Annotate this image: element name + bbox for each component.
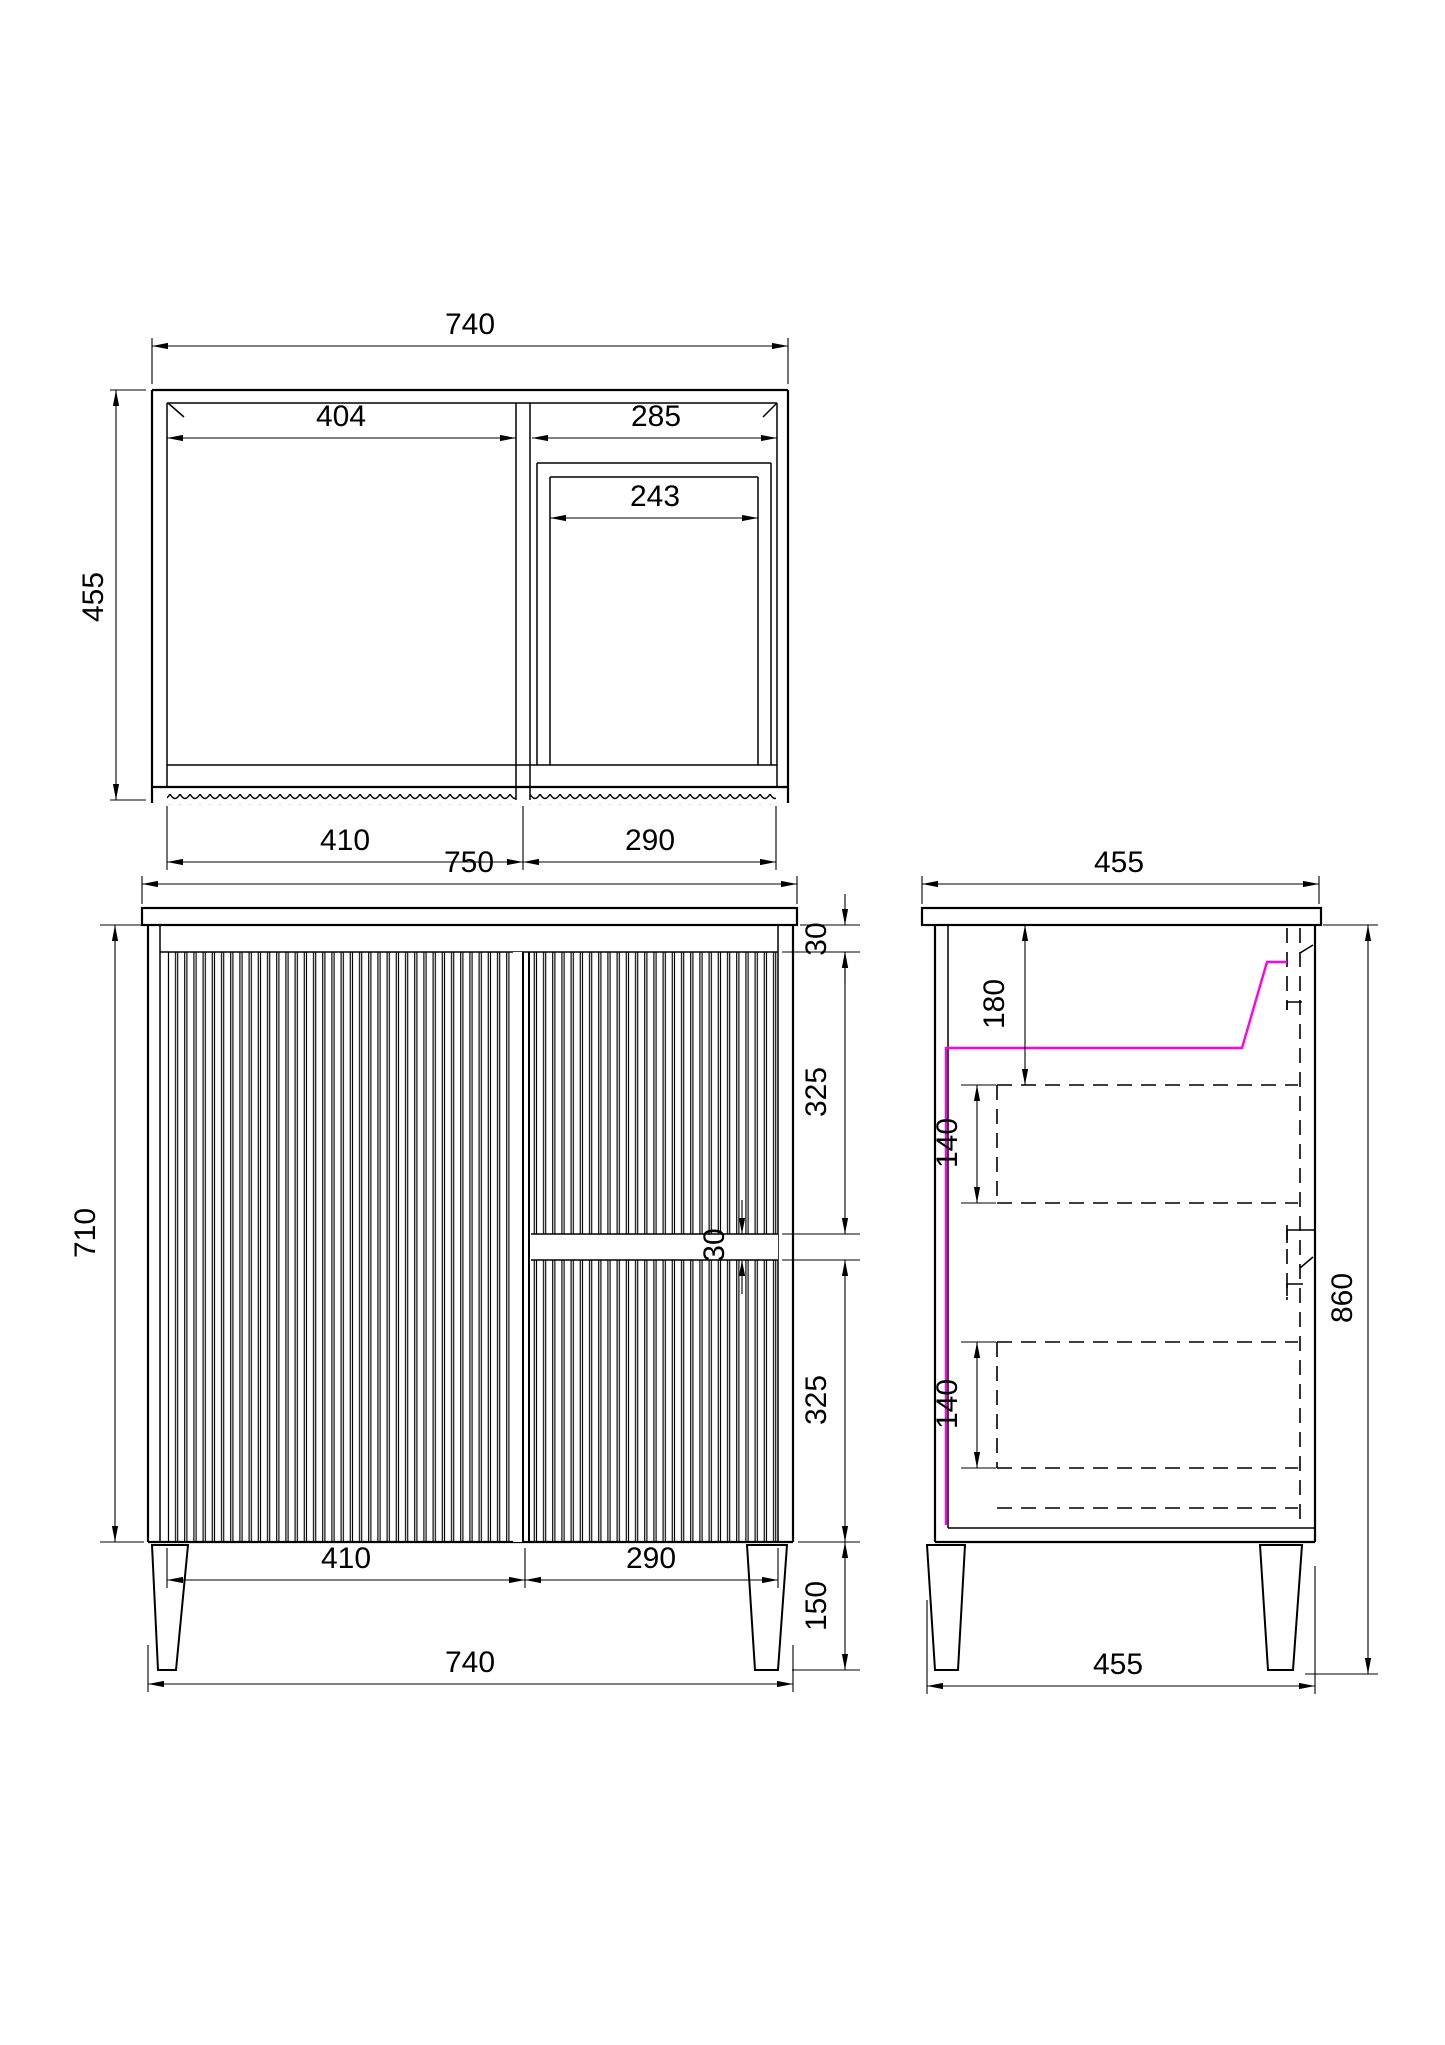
dim-label-front-leg-height: 150 (800, 1581, 833, 1631)
dim-label-front-body-width: 740 (445, 1646, 495, 1679)
dim-label-front-upper-drawer: 325 (800, 1067, 833, 1117)
dim-label-side-base-depth: 455 (1093, 1648, 1143, 1681)
dim-label-top-right-internal: 285 (631, 400, 681, 433)
benchtop-side (922, 908, 1321, 925)
dim-label-top-left-door: 410 (320, 824, 370, 857)
dim-label-side-overall-height: 860 (1326, 1273, 1359, 1323)
dim-label-top-right-door: 290 (625, 824, 675, 857)
dim-label-front-left-door: 410 (321, 1542, 371, 1575)
dim-label-front-groove: 30 (698, 1228, 731, 1261)
fluted-front-scallop-left (167, 794, 516, 805)
drawer-groove (531, 1234, 778, 1260)
benchtop-front (142, 908, 797, 925)
dim-label-front-right-door: 290 (626, 1542, 676, 1575)
dim-label-side-upper-drawer-front: 140 (931, 1118, 964, 1168)
dim-label-front-top-rail: 30 (800, 922, 833, 955)
dim-label-top-left-internal: 404 (316, 400, 366, 433)
dim-label-top-basin-width: 243 (630, 480, 680, 513)
technical-drawing: 740 455 404 285 243 410 290 (0, 0, 1445, 2045)
dim-label-front-body-height: 710 (69, 1208, 102, 1258)
dim-label-top-overall-width: 740 (445, 308, 495, 341)
door-gap (513, 952, 523, 1542)
fluted-door-left (167, 952, 513, 1542)
dim-label-top-overall-depth: 455 (77, 572, 110, 622)
dim-label-front-benchtop-width: 750 (444, 846, 494, 879)
dim-label-side-basin-depth: 180 (978, 979, 1011, 1029)
dim-label-front-lower-drawer: 325 (800, 1375, 833, 1425)
dim-label-side-lower-drawer-front: 140 (931, 1379, 964, 1429)
drawing-page: 740 455 404 285 243 410 290 (0, 0, 1445, 2045)
dim-label-side-benchtop-depth: 455 (1094, 846, 1144, 879)
fluted-front-scallop-right (530, 794, 776, 805)
